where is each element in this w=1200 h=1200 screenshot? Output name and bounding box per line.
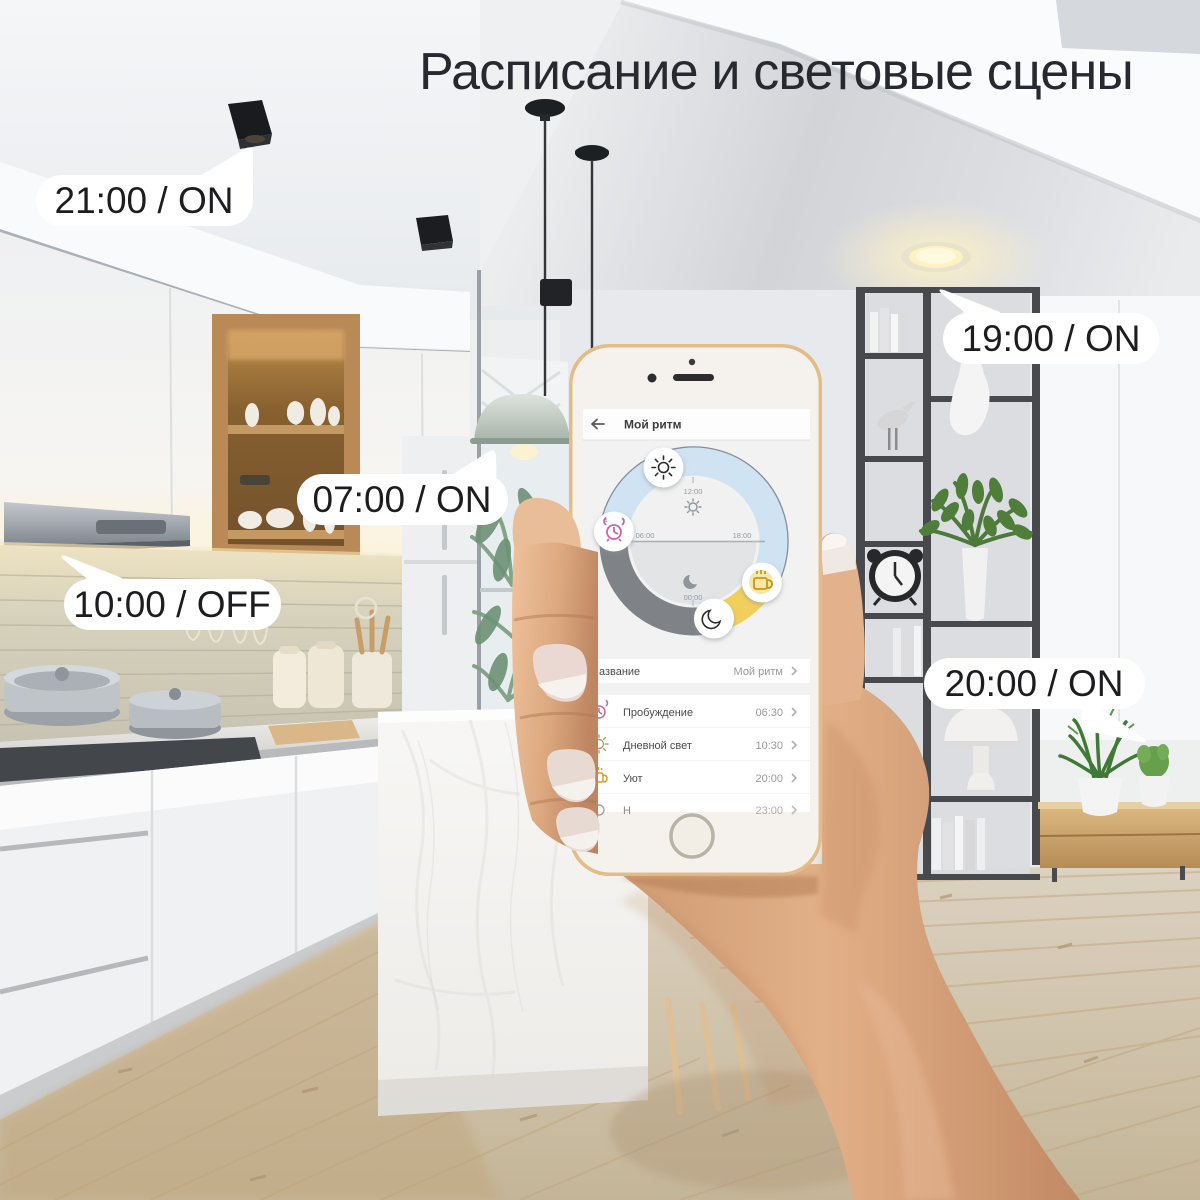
svg-text:Мой ритм: Мой ритм (734, 666, 783, 678)
svg-text:Мой ритм: Мой ритм (624, 418, 682, 432)
svg-text:12:00: 12:00 (684, 487, 703, 496)
svg-text:Расписание и световые сцены: Расписание и световые сцены (419, 43, 1133, 101)
svg-text:20:00: 20:00 (755, 773, 783, 785)
svg-text:18:00: 18:00 (733, 531, 752, 540)
svg-text:Пробуждение: Пробуждение (623, 707, 693, 719)
svg-text:20:00 / ON: 20:00 / ON (945, 663, 1124, 704)
svg-text:1: 1 (604, 517, 608, 524)
svg-text:Н: Н (623, 805, 631, 817)
svg-text:10:30: 10:30 (755, 740, 783, 752)
svg-text:06:00: 06:00 (636, 531, 655, 540)
svg-text:10:00 / OFF: 10:00 / OFF (73, 584, 270, 625)
svg-text:23:00: 23:00 (755, 805, 783, 817)
svg-text:Название: Название (591, 666, 640, 678)
svg-text:Дневной свет: Дневной свет (623, 740, 692, 752)
svg-text:Уют: Уют (623, 773, 643, 785)
svg-text:07:00 / ON: 07:00 / ON (313, 479, 492, 520)
svg-text:06:30: 06:30 (755, 707, 783, 719)
svg-text:19:00 / ON: 19:00 / ON (962, 318, 1141, 359)
svg-text:21:00 / ON: 21:00 / ON (55, 180, 234, 221)
